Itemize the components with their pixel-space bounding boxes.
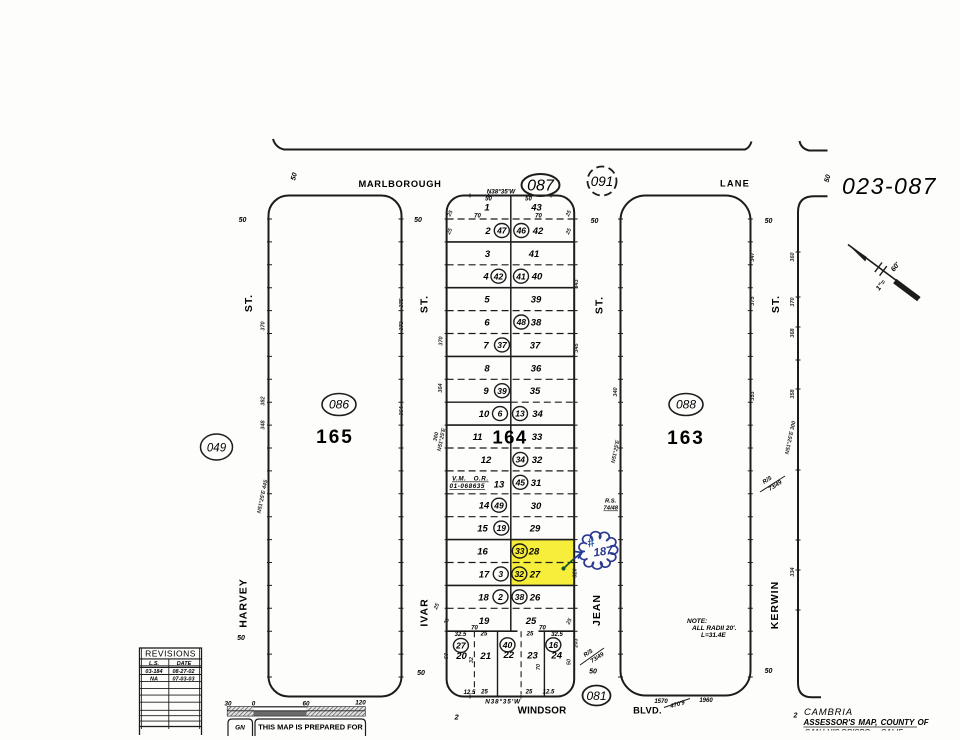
svg-text:163: 163 [667,428,705,449]
svg-text:L.S.: L.S. [149,661,160,667]
svg-text:50: 50 [765,668,773,675]
svg-text:470'9: 470'9 [669,700,686,711]
svg-text:32.5: 32.5 [455,632,467,638]
svg-text:23: 23 [526,651,538,662]
svg-text:50: 50 [824,174,833,183]
svg-text:NOTE:: NOTE: [687,618,707,625]
svg-text:6: 6 [498,409,503,419]
svg-text:33: 33 [532,432,543,443]
svg-text:GN: GN [235,725,245,732]
svg-text:13: 13 [515,409,525,419]
svg-text:70: 70 [471,626,478,632]
svg-text:7: 7 [483,340,489,351]
svg-text:368: 368 [790,327,796,337]
svg-text:25: 25 [480,690,488,696]
svg-text:LANE: LANE [720,179,750,189]
svg-text:25: 25 [565,227,574,237]
svg-text:38: 38 [515,592,525,602]
svg-text:ST.: ST. [594,296,606,314]
svg-text:27: 27 [529,569,541,580]
svg-text:2: 2 [497,592,503,602]
svg-text:087: 087 [527,178,555,195]
svg-text:2: 2 [484,226,491,237]
svg-text:370: 370 [790,297,796,306]
svg-text:47: 47 [496,226,508,236]
svg-text:364: 364 [399,406,405,415]
svg-text:30: 30 [531,501,542,512]
svg-text:28: 28 [528,547,540,558]
svg-text:360: 360 [790,252,796,261]
svg-text:15: 15 [477,524,488,535]
svg-text:25: 25 [525,690,533,696]
svg-text:WINDSOR: WINDSOR [518,706,567,717]
svg-text:37: 37 [497,340,508,350]
svg-text:12: 12 [481,455,492,466]
svg-text:25: 25 [565,617,574,627]
svg-text:49: 49 [493,500,504,510]
svg-text:60': 60' [890,261,902,273]
svg-text:24: 24 [550,651,562,662]
svg-text:4: 4 [482,272,489,283]
svg-text:50: 50 [765,218,773,225]
svg-text:3: 3 [498,569,503,579]
svg-text:IVAR: IVAR [419,598,431,626]
svg-text:14: 14 [479,501,490,512]
svg-text:45: 45 [515,477,526,487]
svg-text:03-184: 03-184 [145,669,162,675]
svg-text:25: 25 [433,602,442,612]
svg-text:07-03-03: 07-03-03 [172,676,194,682]
svg-text:50: 50 [417,670,425,677]
svg-text:ST.: ST. [243,294,255,312]
svg-text:023-087: 023-087 [842,173,937,199]
svg-text:REVISIONS: REVISIONS [145,649,196,659]
svg-text:25: 25 [526,632,534,638]
svg-text:DATE: DATE [177,661,192,667]
svg-text:32: 32 [469,657,475,663]
svg-text:N51°25'E 300: N51°25'E 300 [785,420,798,455]
svg-text:1: 1 [484,203,489,214]
svg-text:25: 25 [565,209,574,219]
svg-text:42: 42 [493,271,504,281]
svg-text:BLVD.: BLVD. [633,706,662,716]
svg-text:R.S.: R.S. [605,499,617,505]
svg-text:370: 370 [439,336,445,345]
svg-text:12.5: 12.5 [464,690,476,696]
svg-text:41: 41 [528,249,540,260]
svg-text:8: 8 [484,363,490,374]
svg-text:9: 9 [483,386,489,397]
svg-text:6: 6 [484,318,490,329]
svg-text:334: 334 [790,567,796,576]
svg-text:32.5: 32.5 [551,632,563,638]
svg-text:32: 32 [532,455,543,466]
svg-text:35: 35 [530,386,541,397]
svg-text:203: 203 [574,638,580,648]
svg-text:50: 50 [485,197,492,203]
svg-text:086: 086 [329,398,349,412]
svg-text:088: 088 [676,398,696,412]
svg-text:JEAN: JEAN [591,594,603,626]
svg-text:375: 375 [750,295,756,305]
svg-text:25: 25 [480,632,488,638]
svg-text:18: 18 [478,592,489,603]
svg-text:16: 16 [549,640,559,650]
svg-text:ASSESSOR'S MAP, COUNTY OF: ASSESSOR'S MAP, COUNTY OF [803,718,930,727]
svg-text:21: 21 [479,651,491,662]
svg-text:40: 40 [502,640,513,650]
svg-text:120: 120 [355,700,366,707]
svg-text:50: 50 [567,659,573,665]
svg-text:48: 48 [516,317,527,327]
svg-text:50: 50 [525,197,532,203]
svg-text:31: 31 [531,478,542,489]
svg-text:5: 5 [484,295,490,306]
svg-text:373: 373 [399,321,405,330]
svg-text:081: 081 [586,689,606,703]
svg-text:13: 13 [494,479,505,490]
svg-text:370: 370 [261,321,267,330]
svg-text:V.M. O.R.: V.M. O.R. [452,476,489,483]
svg-text:70: 70 [536,664,542,670]
svg-text:NA: NA [150,676,158,682]
svg-text:N38°35'W: N38°35'W [485,698,521,706]
svg-text:19: 19 [479,616,490,627]
svg-text:70: 70 [535,214,542,220]
svg-text:2: 2 [454,713,460,722]
svg-text:358: 358 [790,388,796,398]
svg-text:50: 50 [444,653,450,659]
svg-text:10: 10 [479,409,490,420]
svg-text:42: 42 [532,226,544,237]
svg-text:38: 38 [531,318,542,329]
svg-text:3: 3 [485,249,491,260]
svg-text:345: 345 [574,342,580,352]
svg-text:46: 46 [516,226,527,236]
svg-text:N38°35'W: N38°35'W [487,188,517,196]
svg-text:17: 17 [479,569,490,580]
svg-text:ST.: ST. [419,295,431,313]
svg-text:20: 20 [455,651,467,662]
svg-text:74/48: 74/48 [604,506,619,512]
svg-text:375: 375 [399,297,405,307]
svg-text:08-27-02: 08-27-02 [172,669,194,675]
svg-text:41: 41 [515,271,526,281]
svg-text:11: 11 [473,432,483,443]
svg-text:2: 2 [793,713,798,720]
svg-text:50: 50 [591,218,599,225]
svg-text:25: 25 [525,616,537,627]
svg-text:353: 353 [750,391,756,400]
svg-text:16: 16 [477,547,488,558]
svg-text:CAMBRIA: CAMBRIA [804,707,853,718]
svg-text:1960: 1960 [699,698,713,704]
svg-text:348: 348 [261,419,267,429]
svg-text:39: 39 [531,295,542,306]
svg-text:382: 382 [261,396,267,405]
svg-text:01-068635: 01-068635 [450,483,486,490]
svg-text:43: 43 [530,203,542,214]
svg-text:50: 50 [290,172,299,181]
svg-text:19: 19 [497,523,507,533]
svg-text:32: 32 [515,569,525,579]
svg-text:1"=: 1"= [875,279,887,292]
svg-text:MARLBOROUGH: MARLBOROUGH [358,179,441,189]
svg-text:37: 37 [530,340,541,351]
svg-text:KERWIN: KERWIN [769,581,781,629]
svg-text:70: 70 [539,626,546,632]
svg-text:22: 22 [503,650,515,661]
svg-text:L=31.4E: L=31.4E [701,632,726,639]
svg-text:34: 34 [532,409,543,420]
svg-text:049: 049 [207,443,227,455]
svg-text:091: 091 [591,174,614,189]
svg-text:ST.: ST. [770,295,782,313]
svg-text:320: 320 [573,568,579,577]
svg-text:27: 27 [455,641,467,651]
svg-text:29: 29 [529,524,541,535]
svg-text:70: 70 [474,214,481,220]
svg-text:26: 26 [529,592,541,603]
svg-text:12.5: 12.5 [543,690,555,696]
svg-text:HARVEY: HARVEY [238,578,250,628]
svg-text:ALL RADII 20'.: ALL RADII 20'. [691,625,737,632]
svg-text:34: 34 [516,455,526,465]
svg-text:36: 36 [531,363,542,374]
svg-text:40: 40 [531,272,543,283]
svg-text:364: 364 [438,383,444,392]
svg-text:33: 33 [515,546,525,556]
svg-text:50: 50 [414,217,422,224]
svg-text:165: 165 [316,427,354,448]
svg-text:340: 340 [613,387,619,396]
svg-text:343: 343 [574,279,580,288]
svg-text:1570: 1570 [654,699,668,705]
svg-text:164: 164 [492,427,527,448]
svg-text:50: 50 [239,217,247,224]
svg-text:50: 50 [589,669,597,676]
svg-text:347: 347 [750,251,756,261]
svg-text:50: 50 [237,635,245,642]
svg-text:THIS MAP IS PREPARED FOR: THIS MAP IS PREPARED FOR [258,723,363,732]
svg-text:39: 39 [497,386,507,396]
